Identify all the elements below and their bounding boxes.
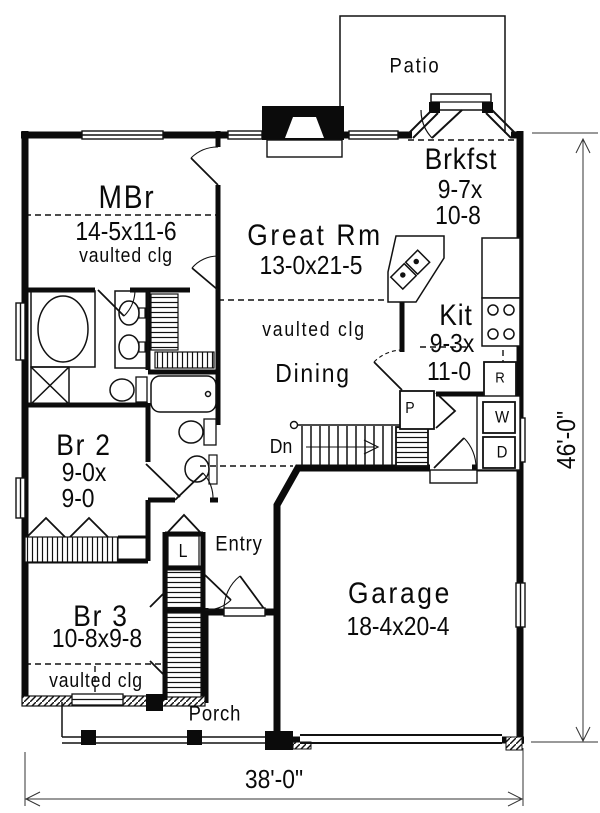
- dim-label-overall-width: 38'-0": [245, 766, 303, 792]
- fireplace: [262, 106, 344, 157]
- room-note-br3: vaulted clg: [49, 671, 143, 691]
- breakfast-bay: [409, 94, 515, 138]
- room-dims-brkfst-1: 9-7x: [438, 176, 483, 202]
- master-bath-fixtures: [31, 291, 214, 404]
- room-note-great-rm: vaulted clg: [262, 320, 366, 340]
- room-label-kit: Kit: [439, 301, 472, 331]
- room-label-patio: Patio: [390, 56, 441, 77]
- room-label-entry: Entry: [215, 534, 263, 555]
- room-dims-great-rm: 13-0x21-5: [259, 252, 362, 278]
- room-label-porch: Porch: [189, 704, 242, 725]
- room-label-dining: Dining: [275, 360, 350, 386]
- room-dims-brkfst-2: 10-8: [435, 202, 481, 228]
- room-dims-br3: 10-8x9-8: [52, 625, 142, 651]
- room-dims-br2-2: 9-0: [61, 485, 94, 511]
- front-wall-and-porch: [22, 694, 522, 750]
- room-note-mbr: vaulted clg: [79, 246, 173, 266]
- room-label-brkfst: Brkfst: [425, 145, 498, 175]
- hall-bath-fixtures: [151, 376, 217, 484]
- room-label-great-rm: Great Rm: [247, 221, 383, 251]
- floor-plan-page: Patio Brkfst 9-7x 10-8 MBr 14-5x11-6 vau…: [0, 0, 600, 813]
- pantry-label: P: [405, 401, 414, 417]
- appliance-label-dryer: D: [497, 444, 508, 461]
- room-label-garage: Garage: [348, 579, 452, 609]
- room-dims-mbr: 14-5x11-6: [75, 218, 176, 244]
- appliance-label-refrigerator: R: [495, 371, 505, 386]
- appliance-label-washer: W: [495, 409, 509, 426]
- room-dims-kit-1: 9-3x: [430, 330, 475, 356]
- dim-label-overall-depth: 46'-0": [553, 411, 579, 469]
- room-dims-kit-2: 11-0: [427, 358, 471, 384]
- closet-label-linen: L: [179, 542, 188, 560]
- garage-door: [300, 735, 502, 743]
- room-dims-garage: 18-4x20-4: [346, 613, 449, 639]
- room-dims-br2-1: 9-0x: [62, 459, 107, 485]
- stairs-label-dn: Dn: [270, 437, 293, 457]
- room-label-mbr: MBr: [99, 181, 156, 213]
